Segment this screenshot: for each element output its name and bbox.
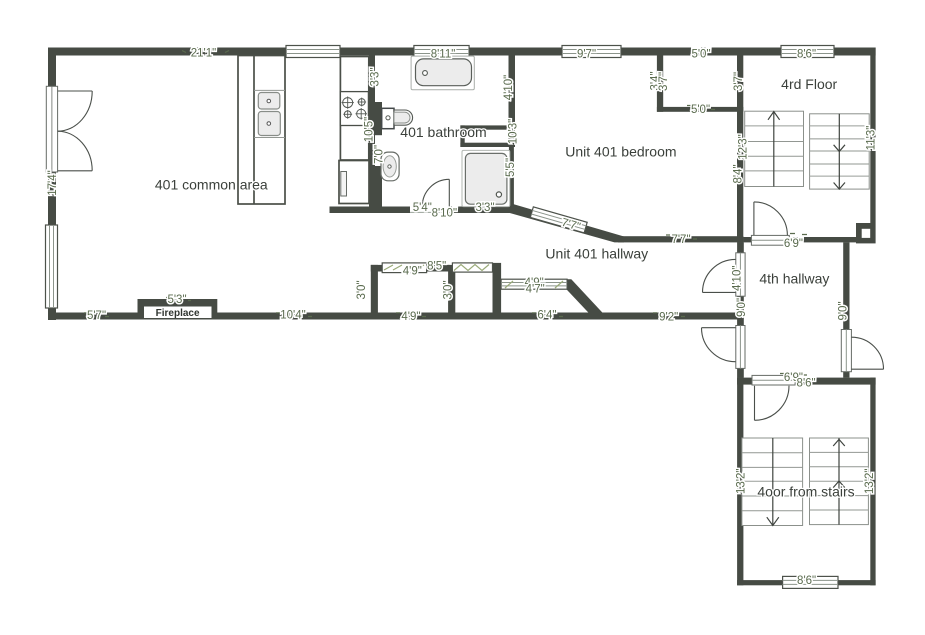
svg-text:7'7": 7'7"	[671, 234, 690, 246]
svg-text:401 bathroom: 401 bathroom	[400, 124, 486, 140]
svg-text:3'0": 3'0"	[442, 280, 454, 299]
svg-text:4'7": 4'7"	[526, 284, 545, 296]
svg-text:4'9": 4'9"	[401, 311, 420, 323]
svg-text:5'7": 5'7"	[87, 310, 106, 322]
svg-text:11'3": 11'3"	[866, 126, 878, 151]
svg-text:6'9": 6'9"	[784, 238, 803, 250]
svg-text:17'4": 17'4"	[47, 170, 59, 195]
svg-text:6'4": 6'4"	[537, 310, 556, 322]
svg-text:4'9": 4'9"	[403, 265, 422, 277]
svg-text:8'11": 8'11"	[431, 49, 456, 61]
svg-text:8'6": 8'6"	[797, 575, 816, 587]
svg-text:8'5": 8'5"	[427, 261, 446, 273]
svg-text:13'2": 13'2"	[864, 469, 876, 494]
svg-text:4th hallway: 4th hallway	[759, 270, 829, 286]
svg-text:5'4": 5'4"	[413, 202, 432, 214]
svg-text:8'6": 8'6"	[797, 378, 816, 390]
svg-text:7'0": 7'0"	[374, 145, 386, 164]
svg-text:4oor from stairs: 4oor from stairs	[757, 484, 854, 500]
svg-text:5'0": 5'0"	[691, 49, 710, 61]
svg-text:8'4": 8'4"	[733, 164, 745, 183]
svg-text:Unit 401 bedroom: Unit 401 bedroom	[565, 144, 676, 160]
svg-text:13'2": 13'2"	[736, 469, 748, 494]
svg-text:8'6": 8'6"	[797, 49, 816, 61]
svg-text:Fireplace: Fireplace	[156, 308, 200, 319]
svg-text:10'5": 10'5"	[364, 117, 376, 142]
svg-text:9'0": 9'0"	[736, 298, 748, 317]
svg-text:5'3": 5'3"	[167, 294, 186, 306]
svg-text:9'2": 9'2"	[659, 312, 678, 324]
svg-text:9'0": 9'0"	[838, 301, 850, 320]
svg-text:12'3": 12'3"	[738, 134, 750, 159]
svg-text:10'4": 10'4"	[280, 310, 305, 322]
svg-text:401 common area: 401 common area	[155, 177, 268, 193]
svg-text:3'7": 3'7"	[658, 72, 670, 91]
svg-text:4'10": 4'10"	[732, 266, 744, 291]
svg-text:21'1": 21'1"	[191, 48, 216, 60]
svg-text:10'3": 10'3"	[508, 119, 520, 144]
svg-text:3'3": 3'3"	[475, 202, 494, 214]
svg-text:4rd Floor: 4rd Floor	[781, 76, 837, 92]
svg-text:8'10": 8'10"	[432, 207, 457, 219]
svg-text:3'7": 3'7"	[733, 72, 745, 91]
svg-text:5'5": 5'5"	[505, 158, 517, 177]
svg-text:5'0": 5'0"	[691, 104, 710, 116]
svg-text:3'3": 3'3"	[370, 67, 382, 86]
svg-text:4'10": 4'10"	[503, 75, 515, 100]
svg-text:9'7": 9'7"	[577, 49, 596, 61]
svg-text:Unit 401 hallway: Unit 401 hallway	[545, 245, 648, 261]
svg-text:3'0": 3'0"	[356, 280, 368, 299]
